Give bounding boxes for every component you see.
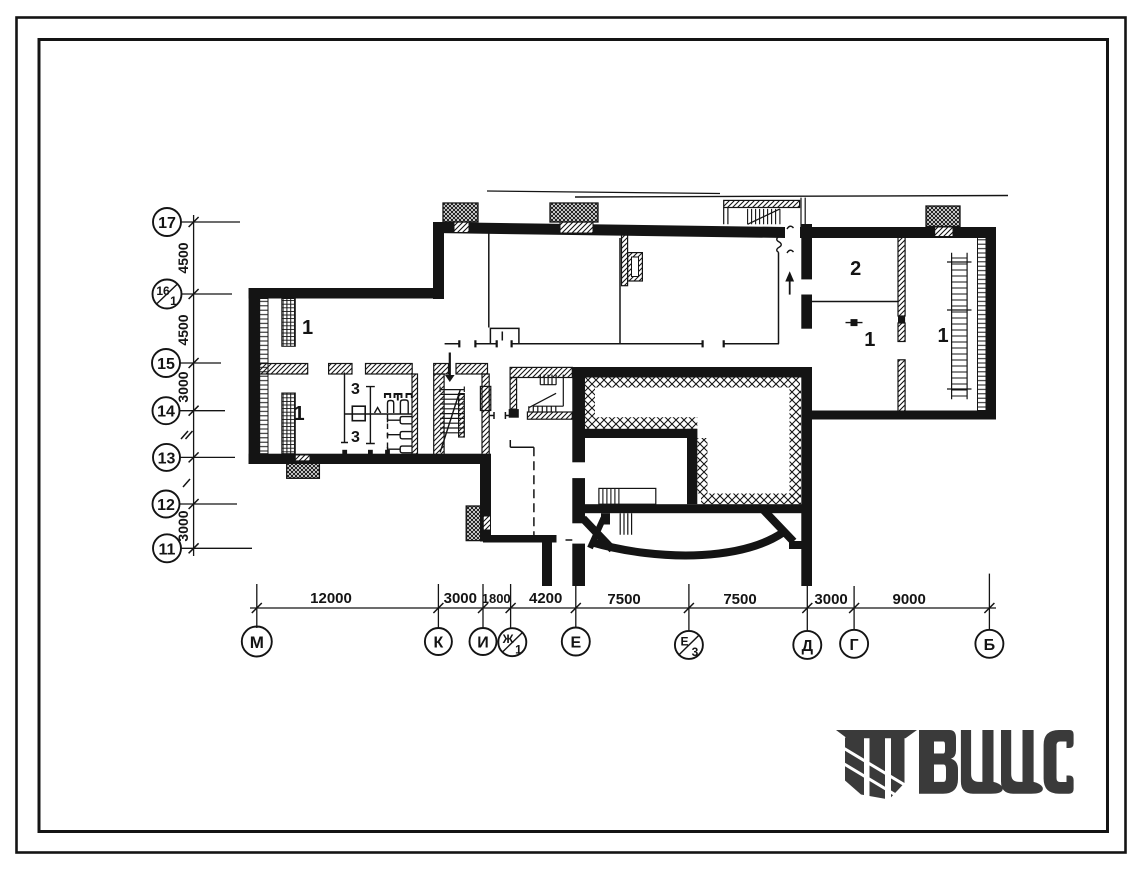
svg-text:3000: 3000 [444, 590, 477, 607]
svg-text:Д: Д [802, 638, 814, 655]
svg-text:17: 17 [158, 215, 176, 232]
svg-text:1: 1 [937, 325, 948, 347]
svg-text:И: И [477, 635, 489, 652]
svg-text:4200: 4200 [529, 590, 562, 607]
svg-text:3: 3 [351, 381, 360, 398]
svg-text:3: 3 [692, 645, 699, 659]
svg-text:Е: Е [680, 635, 688, 649]
svg-text:14: 14 [157, 404, 175, 421]
svg-text:Е: Е [570, 635, 581, 652]
svg-text:3000: 3000 [175, 510, 191, 541]
svg-text:12000: 12000 [310, 590, 352, 607]
svg-text:16: 16 [156, 284, 170, 298]
svg-text:Ж: Ж [502, 632, 514, 646]
svg-text:7500: 7500 [723, 591, 756, 608]
svg-text:2: 2 [850, 258, 861, 280]
svg-text:3000: 3000 [814, 591, 847, 608]
svg-text:К: К [434, 635, 444, 652]
svg-text:М: М [250, 633, 264, 652]
svg-text:4500: 4500 [175, 242, 191, 273]
svg-text:1: 1 [515, 643, 522, 657]
svg-text:13: 13 [158, 450, 176, 467]
svg-text:7500: 7500 [607, 591, 640, 608]
svg-text:1: 1 [170, 294, 177, 308]
svg-text:12: 12 [157, 497, 175, 514]
svg-text:1: 1 [302, 317, 313, 339]
svg-text:1: 1 [864, 329, 875, 351]
svg-text:Г: Г [850, 637, 859, 654]
svg-text:1: 1 [293, 403, 304, 425]
svg-text:15: 15 [157, 356, 175, 373]
svg-text:Б: Б [984, 637, 996, 654]
svg-text:9000: 9000 [893, 591, 926, 608]
svg-text:3: 3 [351, 429, 360, 446]
svg-text:1800: 1800 [482, 591, 511, 606]
svg-text:11: 11 [159, 541, 176, 558]
svg-text:4500: 4500 [175, 314, 191, 345]
svg-text:3000: 3000 [175, 371, 191, 402]
